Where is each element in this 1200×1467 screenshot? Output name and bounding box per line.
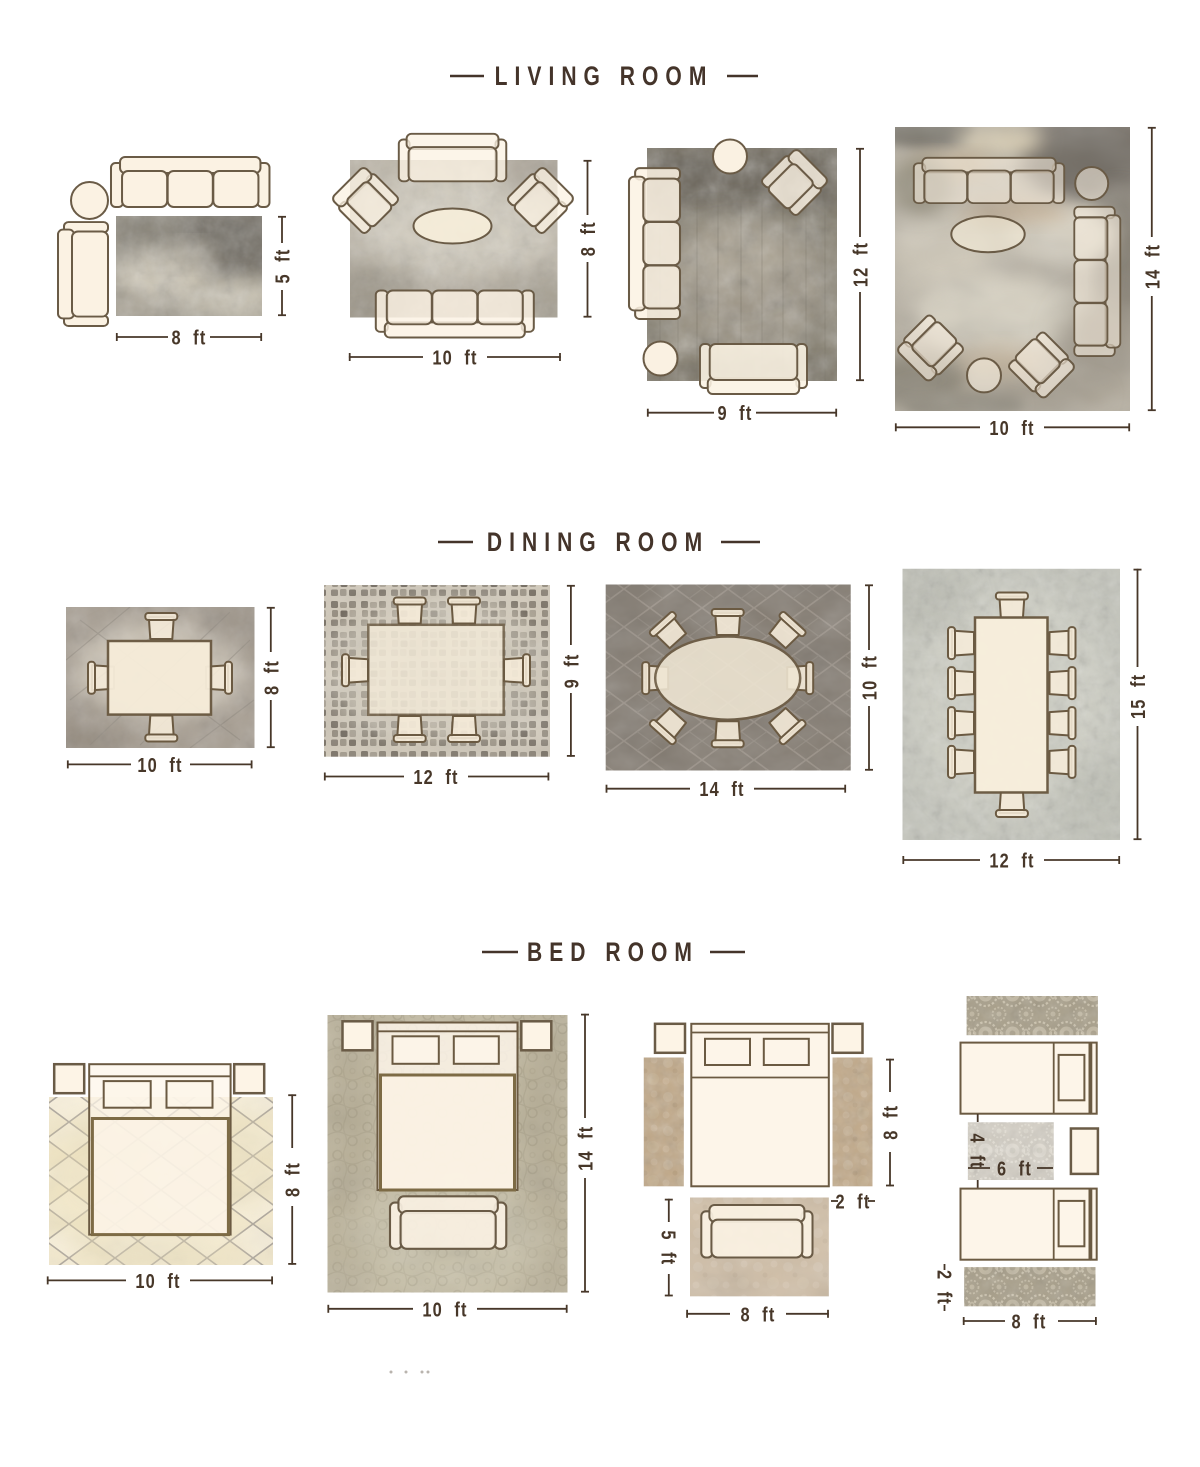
svg-text:10 ft: 10 ft — [137, 753, 182, 776]
svg-text:8 ft: 8 ft — [741, 1303, 776, 1326]
svg-text:14 ft: 14 ft — [574, 1126, 597, 1171]
svg-text:14 ft: 14 ft — [699, 777, 744, 800]
svg-text:4 ft: 4 ft — [966, 1134, 989, 1169]
svg-text:8 ft: 8 ft — [1012, 1310, 1047, 1333]
svg-text:10 ft: 10 ft — [135, 1269, 180, 1292]
svg-text:10 ft: 10 ft — [858, 655, 881, 700]
svg-text:12 ft: 12 ft — [413, 765, 458, 788]
svg-text:9 ft: 9 ft — [560, 653, 583, 688]
svg-text:8 ft: 8 ft — [879, 1105, 902, 1140]
svg-text:2 ft: 2 ft — [933, 1270, 956, 1305]
svg-text:5 ft: 5 ft — [271, 249, 294, 284]
svg-text:2 ft: 2 ft — [836, 1190, 871, 1213]
svg-text:14 ft: 14 ft — [1141, 244, 1164, 289]
svg-text:8 ft: 8 ft — [260, 660, 283, 695]
svg-text:8 ft: 8 ft — [576, 221, 599, 256]
svg-text:10 ft: 10 ft — [989, 416, 1034, 439]
svg-text:5 ft: 5 ft — [657, 1230, 680, 1265]
svg-text:BED ROOM: BED ROOM — [527, 938, 699, 968]
svg-text:8 ft: 8 ft — [281, 1162, 304, 1197]
svg-text:12 ft: 12 ft — [989, 849, 1034, 872]
svg-text:9 ft: 9 ft — [718, 401, 753, 424]
svg-text:10 ft: 10 ft — [422, 1298, 467, 1321]
svg-text:15 ft: 15 ft — [1126, 674, 1149, 719]
svg-text:10 ft: 10 ft — [432, 346, 477, 369]
svg-text:8 ft: 8 ft — [172, 326, 207, 349]
svg-text:LIVING ROOM: LIVING ROOM — [495, 62, 714, 92]
svg-text:12 ft: 12 ft — [849, 242, 872, 287]
svg-text:6 ft: 6 ft — [997, 1157, 1032, 1180]
svg-text:DINING ROOM: DINING ROOM — [487, 528, 709, 558]
